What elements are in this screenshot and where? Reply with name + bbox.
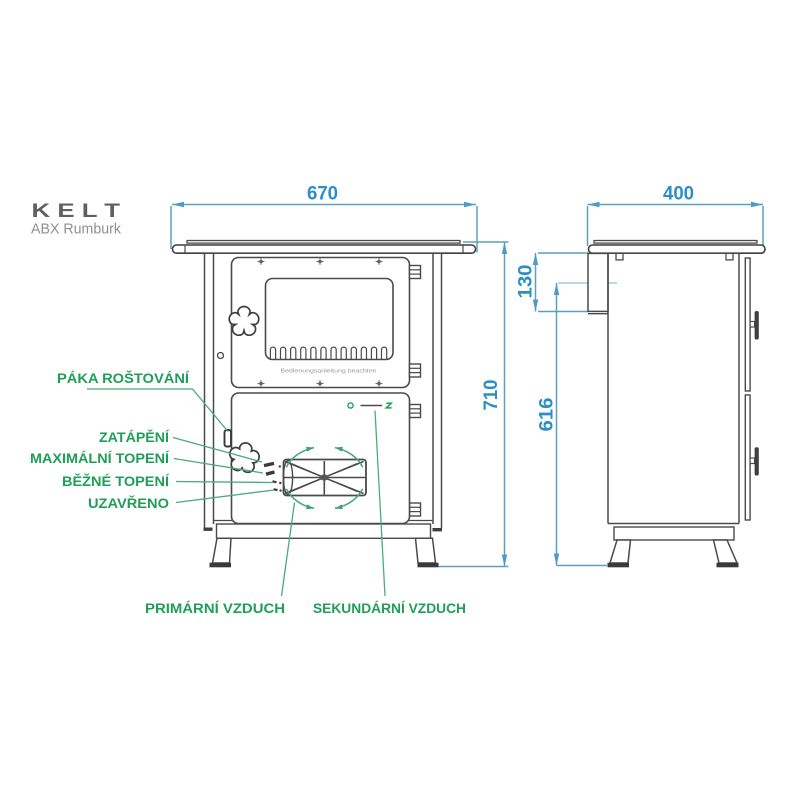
svg-text:BĚŽNÉ TOPENÍ: BĚŽNÉ TOPENÍ (62, 474, 170, 489)
svg-text:ABX Rumburk: ABX Rumburk (31, 222, 122, 238)
svg-text:PÁKA ROŠTOVÁNÍ: PÁKA ROŠTOVÁNÍ (57, 371, 190, 386)
svg-text:Bedienungsanleitung beachten: Bedienungsanleitung beachten (281, 369, 377, 375)
svg-text:616: 616 (537, 398, 558, 432)
svg-text:710: 710 (481, 380, 502, 411)
svg-text:400: 400 (663, 184, 694, 205)
svg-text:UZAVŘENO: UZAVŘENO (88, 496, 169, 511)
svg-text:SEKUNDÁRNÍ VZDUCH: SEKUNDÁRNÍ VZDUCH (313, 601, 466, 616)
svg-text:ZATÁPĚNÍ: ZATÁPĚNÍ (99, 430, 170, 445)
svg-text:130: 130 (516, 265, 537, 299)
svg-text:670: 670 (307, 184, 338, 205)
svg-text:K E L T: K E L T (32, 201, 121, 222)
svg-text:MAXIMÁLNÍ TOPENÍ: MAXIMÁLNÍ TOPENÍ (30, 451, 170, 466)
svg-text:PRIMÁRNÍ VZDUCH: PRIMÁRNÍ VZDUCH (145, 601, 285, 616)
